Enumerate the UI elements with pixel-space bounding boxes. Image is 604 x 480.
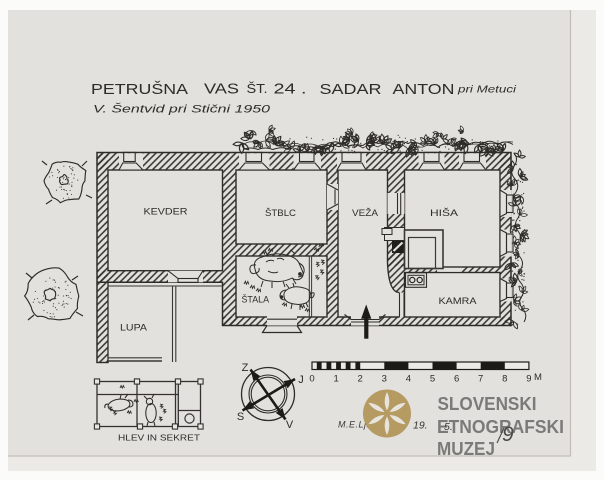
svg-text:ETNOGRAFSKI: ETNOGRAFSKI bbox=[437, 417, 564, 437]
svg-text:KAMRA: KAMRA bbox=[439, 296, 478, 307]
svg-text:ŠT.: ŠT. bbox=[247, 81, 268, 96]
svg-text:5.: 5. bbox=[444, 421, 453, 433]
svg-text:19.: 19. bbox=[413, 420, 428, 432]
svg-text:3: 3 bbox=[382, 374, 387, 385]
svg-text:S: S bbox=[237, 411, 244, 423]
svg-text:8: 8 bbox=[502, 374, 507, 385]
svg-text:4: 4 bbox=[406, 374, 411, 385]
svg-text:ANTON: ANTON bbox=[393, 82, 455, 98]
svg-text:HLEV IN SEKRET: HLEV IN SEKRET bbox=[118, 433, 200, 443]
svg-text:pri Metuci: pri Metuci bbox=[457, 84, 517, 96]
svg-text:24 .: 24 . bbox=[274, 81, 307, 98]
svg-text:SLOVENSKI: SLOVENSKI bbox=[438, 394, 537, 414]
svg-text:9: 9 bbox=[502, 423, 514, 446]
svg-text:SADAR: SADAR bbox=[320, 82, 382, 98]
svg-text:PETRUŠNA: PETRUŠNA bbox=[91, 81, 188, 98]
svg-text:7: 7 bbox=[478, 374, 483, 385]
svg-text:Z: Z bbox=[242, 362, 249, 374]
svg-text:2: 2 bbox=[358, 374, 363, 385]
svg-text:J: J bbox=[298, 374, 304, 386]
svg-text:5: 5 bbox=[430, 374, 435, 385]
svg-text:1: 1 bbox=[333, 374, 338, 385]
svg-text:LUPA: LUPA bbox=[120, 323, 148, 334]
svg-text:M: M bbox=[534, 372, 542, 383]
svg-text:KEVDER: KEVDER bbox=[144, 207, 188, 218]
svg-text:V. Šentvid pri Stični 1950: V. Šentvid pri Stični 1950 bbox=[93, 103, 271, 116]
svg-text:MUZEJ: MUZEJ bbox=[437, 439, 495, 459]
svg-text:V: V bbox=[286, 419, 294, 431]
svg-text:HIŠA: HIŠA bbox=[430, 208, 459, 219]
svg-text:ŠTALA: ŠTALA bbox=[242, 295, 270, 306]
svg-text:VAS: VAS bbox=[204, 82, 239, 98]
svg-text:0: 0 bbox=[309, 374, 314, 385]
svg-text:9: 9 bbox=[526, 374, 531, 385]
svg-text:VEŽA: VEŽA bbox=[352, 208, 379, 219]
svg-text:6: 6 bbox=[454, 374, 459, 385]
svg-text:ŠTBLC: ŠTBLC bbox=[265, 208, 296, 219]
